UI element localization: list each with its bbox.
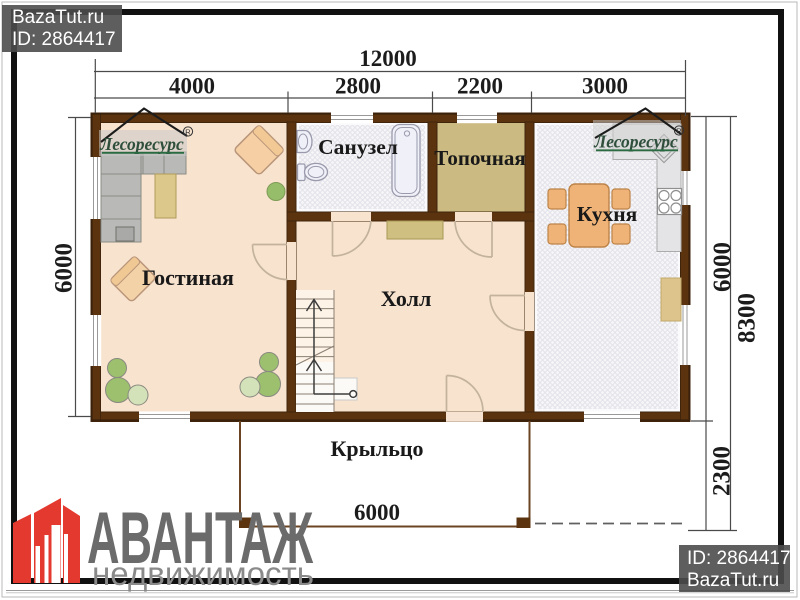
svg-text:Санузел: Санузел bbox=[318, 135, 398, 159]
svg-text:6000: 6000 bbox=[51, 243, 78, 293]
svg-text:Лесоресурс: Лесоресурс bbox=[593, 132, 678, 152]
svg-text:2800: 2800 bbox=[335, 74, 381, 99]
svg-text:8300: 8300 bbox=[734, 293, 761, 343]
svg-text:2200: 2200 bbox=[457, 74, 503, 99]
svg-text:2300: 2300 bbox=[709, 446, 736, 496]
svg-text:Лесоресурс: Лесоресурс bbox=[99, 134, 184, 154]
svg-text:недвижимость: недвижимость bbox=[92, 555, 314, 592]
svg-text:R: R bbox=[185, 128, 191, 137]
svg-text:BazaTut.ru: BazaTut.ru bbox=[687, 570, 779, 591]
svg-text:Гостиная: Гостиная bbox=[142, 265, 234, 290]
svg-text:Топочная: Топочная bbox=[434, 146, 525, 170]
svg-text:3000: 3000 bbox=[582, 74, 628, 99]
svg-text:BazaTut.ru: BazaTut.ru bbox=[12, 7, 104, 28]
svg-text:Крыльцо: Крыльцо bbox=[330, 436, 423, 461]
svg-text:6000: 6000 bbox=[354, 500, 400, 525]
svg-text:6000: 6000 bbox=[709, 242, 736, 292]
svg-text:R: R bbox=[676, 127, 682, 136]
svg-text:Кухня: Кухня bbox=[577, 202, 638, 226]
svg-text:ID: 2864417: ID: 2864417 bbox=[687, 548, 791, 569]
svg-text:ID: 2864417: ID: 2864417 bbox=[12, 29, 116, 50]
svg-text:4000: 4000 bbox=[169, 74, 215, 99]
svg-text:12000: 12000 bbox=[359, 46, 417, 71]
svg-text:Холл: Холл bbox=[381, 286, 432, 311]
